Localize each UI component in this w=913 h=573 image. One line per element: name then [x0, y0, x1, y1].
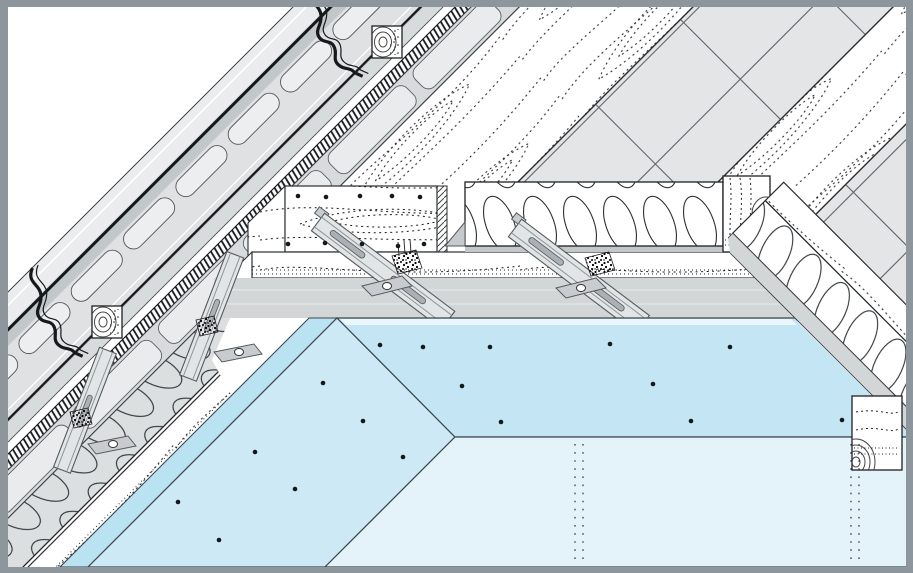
mineral-wool-batt — [465, 182, 723, 246]
screw-dot — [217, 538, 222, 543]
screw-dot — [608, 342, 613, 347]
screw-dot — [253, 450, 258, 455]
screw-dot — [460, 384, 465, 389]
screw-dot — [321, 381, 326, 386]
screw-dot — [390, 194, 395, 199]
bracket-hole — [235, 349, 244, 356]
screw-dot — [418, 195, 423, 200]
tile-batten-block — [370, 26, 402, 58]
top-edge-highlight — [340, 319, 797, 325]
screw-dot — [296, 194, 301, 199]
roof-detail-drawing — [0, 0, 913, 573]
screw-dot — [286, 242, 291, 247]
screw-dot — [361, 419, 366, 424]
screw-dot — [176, 500, 181, 505]
screw-dot — [358, 194, 363, 199]
screw-dot — [689, 419, 694, 424]
screw-dot — [499, 420, 504, 425]
screw-dot — [728, 345, 733, 350]
screw-dot — [360, 242, 365, 247]
bracket-hole — [109, 441, 118, 448]
screw-dot — [651, 382, 656, 387]
screw-dot — [422, 242, 427, 247]
screw-dot — [378, 343, 383, 348]
screw-dot — [401, 455, 406, 460]
screw-dot — [323, 241, 328, 246]
screw-dot — [396, 244, 401, 249]
insulation-shadow — [465, 246, 723, 252]
bracket-hole — [383, 283, 392, 290]
construction-detail-figure — [0, 0, 913, 573]
screw-dot — [840, 418, 845, 423]
timber-plank — [252, 252, 790, 278]
acoustic-pad — [196, 316, 218, 336]
screw-dot — [293, 487, 298, 492]
acoustic-pad — [70, 408, 92, 428]
gray-board-surface — [214, 278, 823, 318]
screw-dot — [324, 195, 329, 200]
screw-dot — [421, 345, 426, 350]
tile-batten-block — [90, 306, 122, 338]
board-cut-edge-hatch — [437, 186, 447, 252]
bracket-hole — [577, 285, 586, 292]
screw-dot — [488, 345, 493, 350]
gray-board-band — [214, 278, 823, 318]
upper-timber-board — [285, 186, 447, 252]
